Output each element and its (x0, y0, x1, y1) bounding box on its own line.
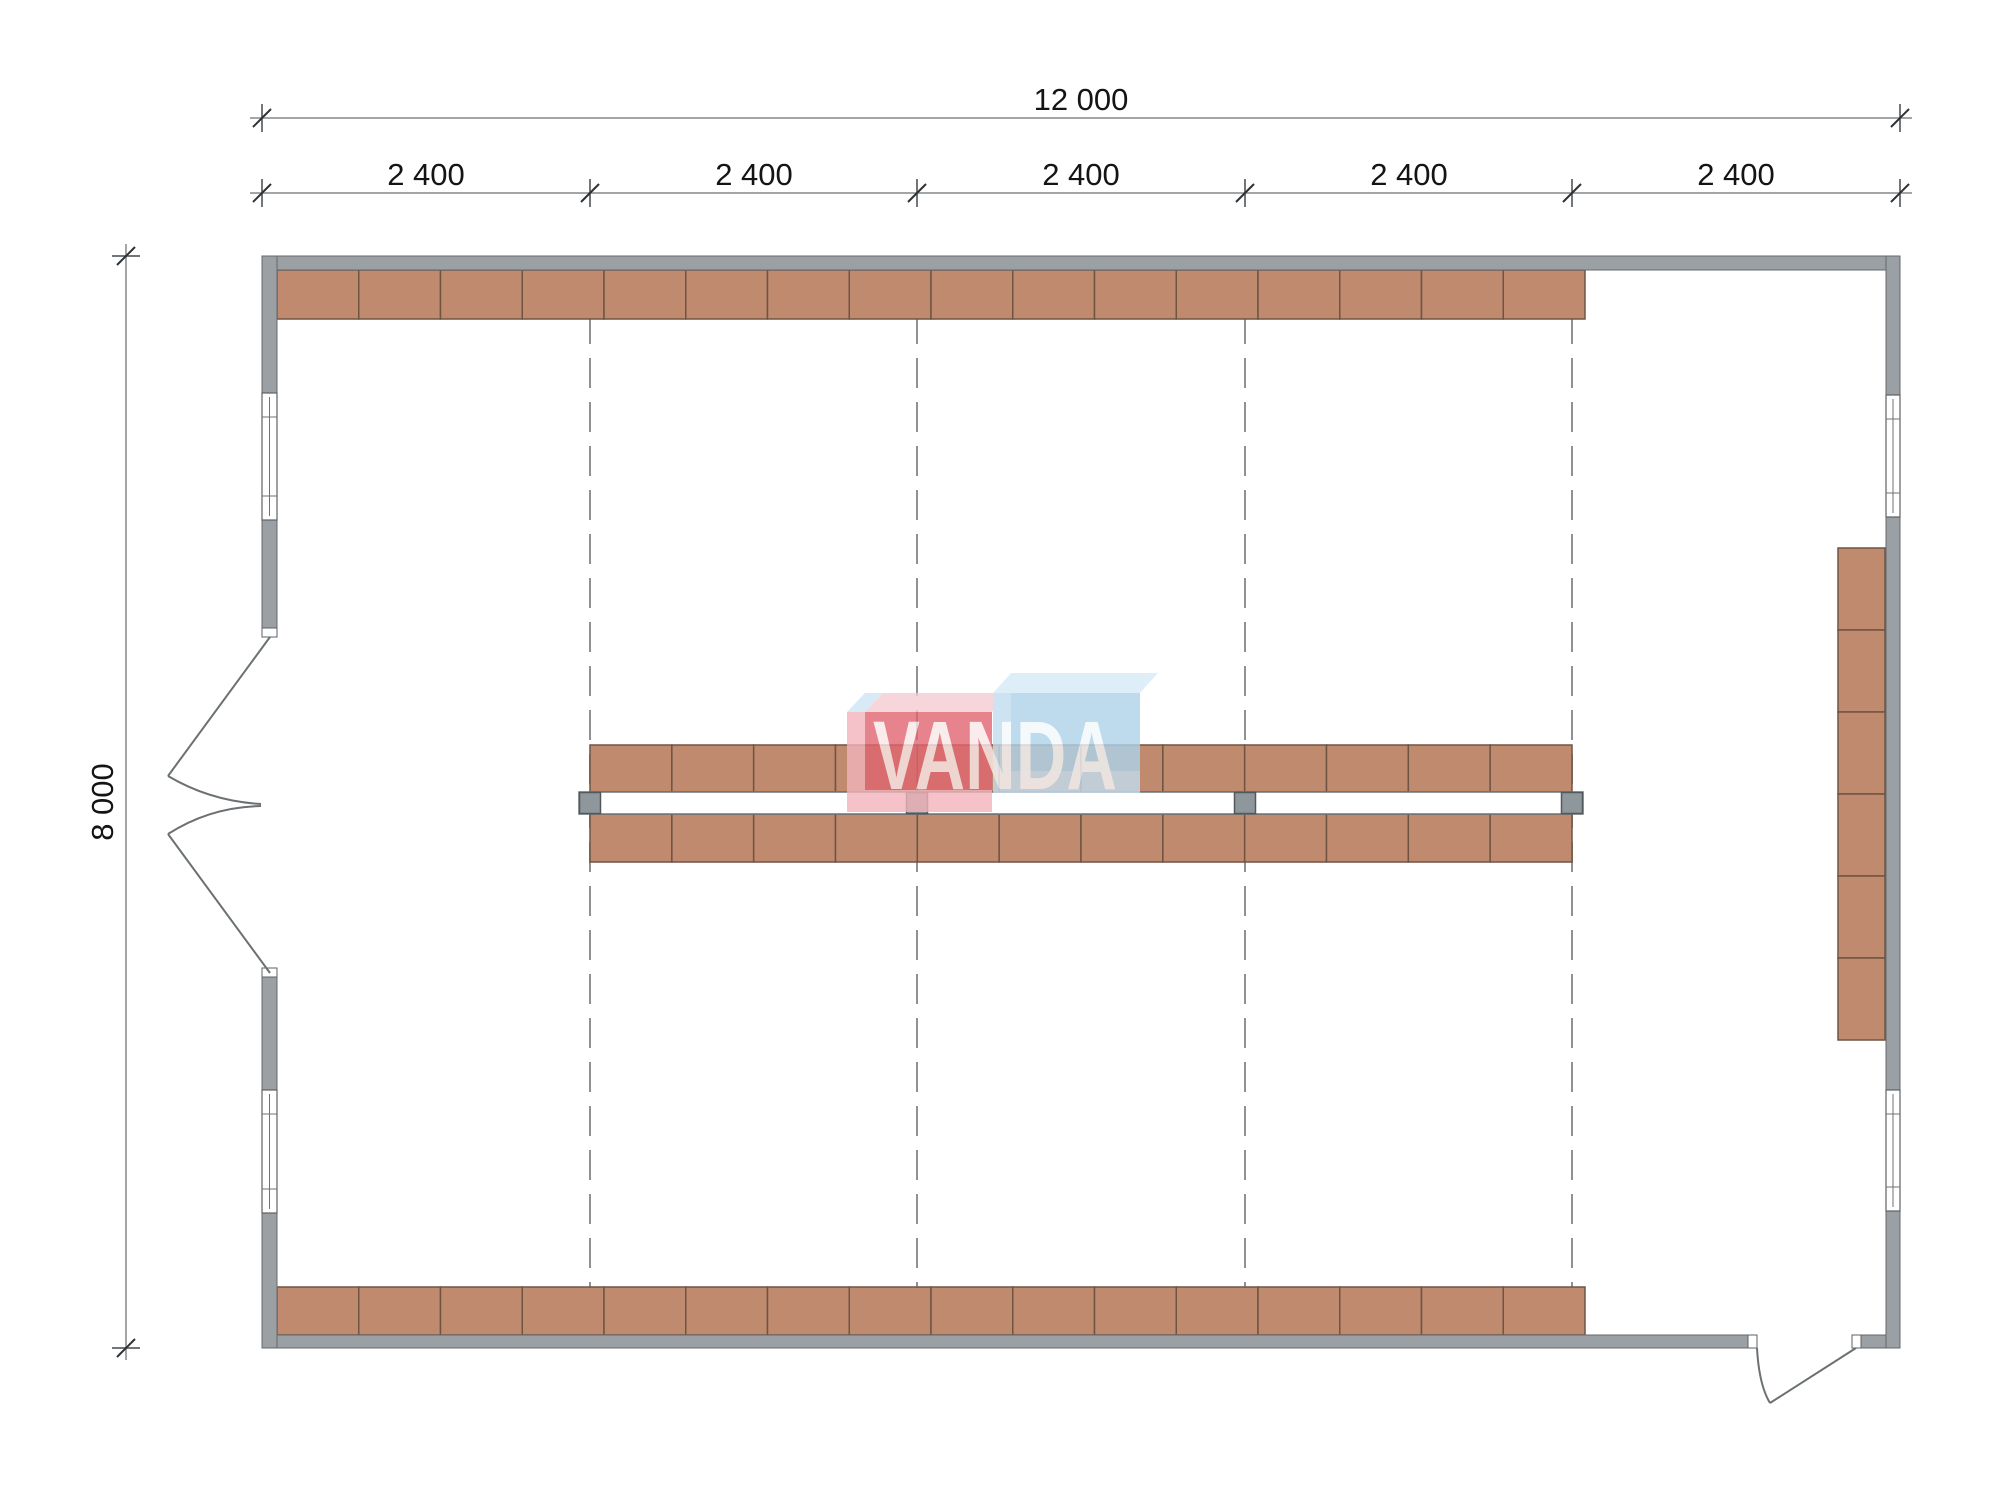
watermark-text: VANDA (873, 701, 1117, 810)
shelf-cell (277, 270, 359, 319)
shelf-cell (1258, 270, 1340, 319)
door-leaf (168, 637, 270, 776)
door-jamb (262, 628, 277, 637)
shelf-cell (1503, 1287, 1585, 1335)
door-leaf (1770, 1348, 1856, 1403)
shelf-cell (359, 1287, 441, 1335)
shelf-cell (1163, 745, 1245, 792)
shelf-cell (1340, 1287, 1422, 1335)
shelf-cell (1838, 958, 1885, 1040)
window-left-1 (262, 393, 277, 520)
bay-label-4: 2 400 (1370, 157, 1448, 192)
shelf-cell (1013, 1287, 1095, 1335)
shelf-cell (1490, 814, 1572, 862)
shelf-cell (1176, 1287, 1258, 1335)
shelf-cell (849, 1287, 931, 1335)
shelf-cell (849, 270, 931, 319)
wall-top (262, 256, 1900, 270)
rack-column (1562, 793, 1583, 814)
shelf-cell (604, 1287, 686, 1335)
door-jamb (1748, 1335, 1757, 1348)
shelf-cell (917, 814, 999, 862)
rack-column (580, 793, 601, 814)
wall-right-3 (1886, 1211, 1900, 1348)
shelf-cell (277, 1287, 359, 1335)
shelf-cell (1163, 814, 1245, 862)
shelf-cell (1176, 270, 1258, 319)
shelf-cell (931, 270, 1013, 319)
floor-plan-drawing: 12 000 2 400 2 400 2 400 2 400 2 400 8 0… (0, 0, 2000, 1488)
wall-left-3 (262, 977, 277, 1090)
shelf-row-bottom (277, 1287, 1585, 1335)
shelf-cell (1838, 712, 1885, 794)
shelf-cell (1422, 270, 1504, 319)
shelf-cell (441, 1287, 523, 1335)
bay-label-3: 2 400 (1042, 157, 1120, 192)
shelf-cell (1095, 270, 1177, 319)
shelf-cell (1327, 814, 1409, 862)
shelf-cell (768, 1287, 850, 1335)
shelf-cell (672, 814, 754, 862)
shelf-cell (1838, 876, 1885, 958)
wall-right-1 (1886, 256, 1900, 395)
shelf-cell (754, 745, 836, 792)
shelf-cell (1838, 630, 1885, 712)
dimension-top-bays: 2 400 2 400 2 400 2 400 2 400 (250, 157, 1912, 207)
shelf-cell (590, 814, 672, 862)
shelf-cell (1081, 814, 1163, 862)
door-swing-arc (168, 776, 261, 804)
shelf-cell (1408, 745, 1490, 792)
shelf-cell (1503, 270, 1585, 319)
shelf-cell (1408, 814, 1490, 862)
shelf-cell (359, 270, 441, 319)
dimension-top-total: 12 000 (250, 82, 1912, 132)
door-left-double (168, 628, 277, 977)
shelf-cell (768, 270, 850, 319)
shelf-cell (1095, 1287, 1177, 1335)
window-left-2 (262, 1090, 277, 1213)
shelf-cell (1245, 745, 1327, 792)
shelf-cell (686, 1287, 768, 1335)
dimension-label-total-width: 12 000 (1034, 82, 1129, 117)
window-right-2 (1886, 1090, 1900, 1211)
shelf-cell (1327, 745, 1409, 792)
floor-plan-sheet: 12 000 2 400 2 400 2 400 2 400 2 400 8 0… (0, 0, 2000, 1488)
wall-left-4 (262, 1213, 277, 1348)
dimension-label-total-height: 8 000 (85, 763, 120, 841)
shelf-cell (604, 270, 686, 319)
shelf-cell (686, 270, 768, 319)
shelf-cell (441, 270, 523, 319)
bay-label-2: 2 400 (715, 157, 793, 192)
bay-label-1: 2 400 (387, 157, 465, 192)
shelf-cell (1013, 270, 1095, 319)
shelf-cell (754, 814, 836, 862)
window-right-1 (1886, 395, 1900, 517)
shelf-cell (836, 814, 918, 862)
shelf-cell (590, 745, 672, 792)
shelf-cell (1422, 1287, 1504, 1335)
shelf-cell (1340, 270, 1422, 319)
wall-left-1 (262, 256, 277, 393)
wall-right-2 (1886, 517, 1900, 1090)
right-shelf-stack (1838, 548, 1885, 1040)
shelf-cell (1838, 548, 1885, 630)
door-jamb (1852, 1335, 1861, 1348)
door-leaf (168, 834, 270, 973)
shelf-cell (522, 1287, 604, 1335)
door-swing-arc (168, 806, 261, 834)
dimension-left-height: 8 000 (85, 244, 140, 1360)
wall-left-2 (262, 520, 277, 628)
shelf-cell (522, 270, 604, 319)
shelf-cell (931, 1287, 1013, 1335)
wall-bottom (262, 1335, 1748, 1348)
shelf-cell (1490, 745, 1572, 792)
shelf-cell (1258, 1287, 1340, 1335)
door-swing-arc (1757, 1348, 1770, 1403)
shelf-cell (672, 745, 754, 792)
rack-column (1235, 793, 1256, 814)
vanda-watermark: VANDA (847, 673, 1158, 812)
shelf-cell (1838, 794, 1885, 876)
center-rack-bottom (590, 814, 1572, 862)
shelf-cell (1245, 814, 1327, 862)
shelf-row-top (277, 270, 1585, 319)
bay-label-5: 2 400 (1697, 157, 1775, 192)
door-bottom-right (1748, 1335, 1861, 1403)
shelf-cell (999, 814, 1081, 862)
